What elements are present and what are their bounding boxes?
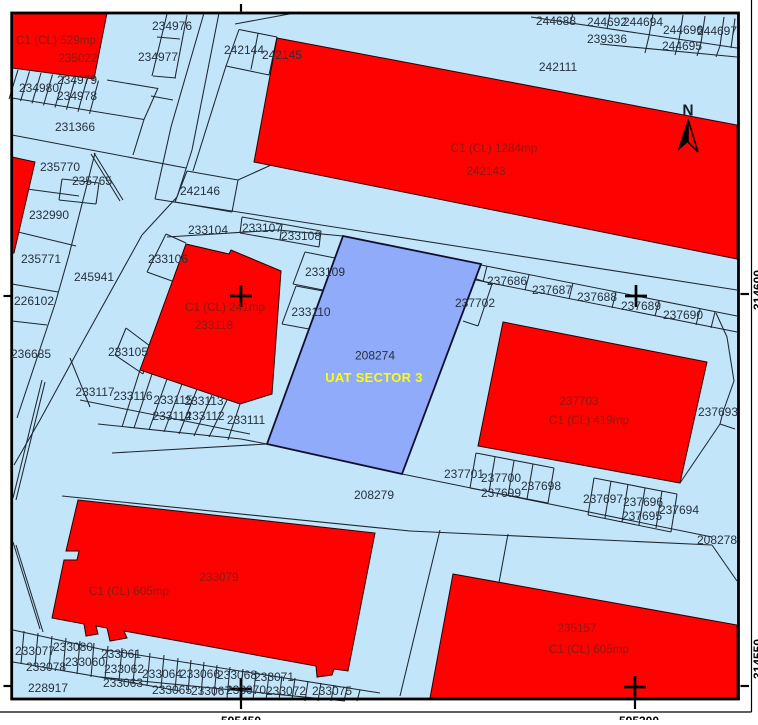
svg-text:235022: 235022 bbox=[58, 52, 97, 65]
svg-text:595450: 595450 bbox=[221, 714, 261, 720]
svg-text:208279: 208279 bbox=[354, 488, 394, 502]
svg-text:234978: 234978 bbox=[57, 89, 97, 103]
svg-text:235157: 235157 bbox=[557, 622, 596, 635]
svg-text:237699: 237699 bbox=[481, 486, 521, 500]
svg-text:233070: 233070 bbox=[226, 683, 266, 697]
svg-text:233062: 233062 bbox=[104, 662, 144, 676]
svg-text:244688: 244688 bbox=[536, 14, 576, 28]
svg-text:234980: 234980 bbox=[19, 81, 59, 95]
svg-text:237689: 237689 bbox=[621, 299, 661, 313]
svg-text:237701: 237701 bbox=[444, 467, 484, 481]
svg-text:237700: 237700 bbox=[481, 471, 521, 485]
svg-text:233112: 233112 bbox=[185, 409, 224, 423]
svg-text:244694: 244694 bbox=[623, 15, 663, 29]
svg-text:N: N bbox=[682, 103, 693, 120]
svg-text:595300: 595300 bbox=[619, 714, 659, 720]
svg-text:UAT SECTOR 3: UAT SECTOR 3 bbox=[325, 370, 423, 385]
svg-text:237697: 237697 bbox=[583, 492, 623, 506]
svg-text:233075: 233075 bbox=[312, 684, 352, 698]
svg-text:244695: 244695 bbox=[662, 39, 702, 53]
svg-text:232990: 232990 bbox=[29, 208, 69, 222]
svg-text:C1 (CL) 241mp: C1 (CL) 241mp bbox=[185, 301, 265, 314]
svg-text:233060: 233060 bbox=[65, 655, 105, 669]
svg-text:242111: 242111 bbox=[539, 60, 578, 74]
svg-text:237688: 237688 bbox=[577, 290, 617, 304]
svg-text:237698: 237698 bbox=[521, 479, 561, 493]
svg-text:C1 (CL) 605mp: C1 (CL) 605mp bbox=[89, 585, 169, 598]
svg-text:235770: 235770 bbox=[40, 160, 80, 174]
svg-text:233064: 233064 bbox=[142, 667, 182, 681]
svg-text:244692: 244692 bbox=[587, 15, 627, 29]
svg-text:244697: 244697 bbox=[697, 24, 737, 38]
svg-text:208274: 208274 bbox=[355, 349, 395, 363]
svg-text:C1 (CL) 529mp: C1 (CL) 529mp bbox=[16, 34, 96, 47]
svg-text:233061: 233061 bbox=[101, 647, 141, 661]
svg-text:235771: 235771 bbox=[21, 252, 61, 266]
svg-text:234979: 234979 bbox=[57, 73, 97, 87]
svg-text:C1 (CL) 419mp: C1 (CL) 419mp bbox=[549, 414, 629, 427]
svg-text:245941: 245941 bbox=[74, 270, 114, 284]
svg-text:233104: 233104 bbox=[188, 223, 228, 237]
svg-text:237693: 237693 bbox=[698, 405, 738, 419]
svg-text:242143: 242143 bbox=[466, 165, 505, 178]
svg-text:237703: 237703 bbox=[559, 395, 598, 408]
svg-text:C1 (CL) 605mp: C1 (CL) 605mp bbox=[549, 643, 629, 656]
svg-text:226102: 226102 bbox=[14, 294, 54, 308]
svg-text:233106: 233106 bbox=[148, 252, 188, 266]
svg-text:233109: 233109 bbox=[305, 265, 345, 279]
svg-text:234976: 234976 bbox=[152, 19, 192, 33]
svg-text:C1 (CL) 1284mp: C1 (CL) 1284mp bbox=[451, 142, 538, 155]
svg-text:314600: 314600 bbox=[751, 270, 758, 310]
svg-text:242146: 242146 bbox=[180, 184, 220, 198]
svg-text:233078: 233078 bbox=[26, 660, 66, 674]
svg-text:233107: 233107 bbox=[242, 221, 282, 235]
svg-text:234977: 234977 bbox=[138, 50, 178, 64]
svg-text:235765: 235765 bbox=[72, 174, 112, 188]
svg-text:233111: 233111 bbox=[227, 413, 266, 427]
svg-text:233108: 233108 bbox=[281, 229, 321, 243]
svg-text:237690: 237690 bbox=[663, 308, 703, 322]
svg-text:233072: 233072 bbox=[266, 684, 306, 698]
svg-text:208278: 208278 bbox=[697, 533, 737, 547]
svg-text:237694: 237694 bbox=[659, 503, 699, 517]
svg-text:233068: 233068 bbox=[217, 668, 257, 682]
svg-text:233110: 233110 bbox=[291, 305, 330, 319]
svg-text:228917: 228917 bbox=[28, 681, 68, 695]
svg-text:233065: 233065 bbox=[152, 683, 192, 697]
svg-text:233071: 233071 bbox=[254, 670, 294, 684]
svg-text:237687: 237687 bbox=[532, 283, 572, 297]
svg-text:233077: 233077 bbox=[15, 644, 55, 658]
svg-text:236685: 236685 bbox=[11, 347, 51, 361]
svg-text:233066: 233066 bbox=[180, 667, 220, 681]
svg-text:231366: 231366 bbox=[55, 120, 95, 134]
svg-text:237686: 237686 bbox=[487, 274, 527, 288]
svg-text:233116: 233116 bbox=[113, 389, 152, 403]
svg-text:237702: 237702 bbox=[455, 296, 495, 310]
svg-text:242144: 242144 bbox=[224, 43, 264, 57]
svg-text:233117: 233117 bbox=[75, 385, 114, 399]
svg-text:233079: 233079 bbox=[199, 571, 238, 584]
svg-text:237696: 237696 bbox=[623, 495, 663, 509]
svg-text:233080: 233080 bbox=[53, 640, 93, 654]
svg-text:314550: 314550 bbox=[751, 639, 758, 679]
svg-text:237695: 237695 bbox=[622, 509, 662, 523]
svg-text:242145: 242145 bbox=[262, 48, 302, 62]
svg-text:233113: 233113 bbox=[184, 394, 223, 408]
svg-text:233063: 233063 bbox=[103, 676, 143, 690]
svg-text:239336: 239336 bbox=[587, 32, 627, 46]
svg-text:233118: 233118 bbox=[195, 319, 233, 332]
svg-text:233105: 233105 bbox=[108, 345, 148, 359]
